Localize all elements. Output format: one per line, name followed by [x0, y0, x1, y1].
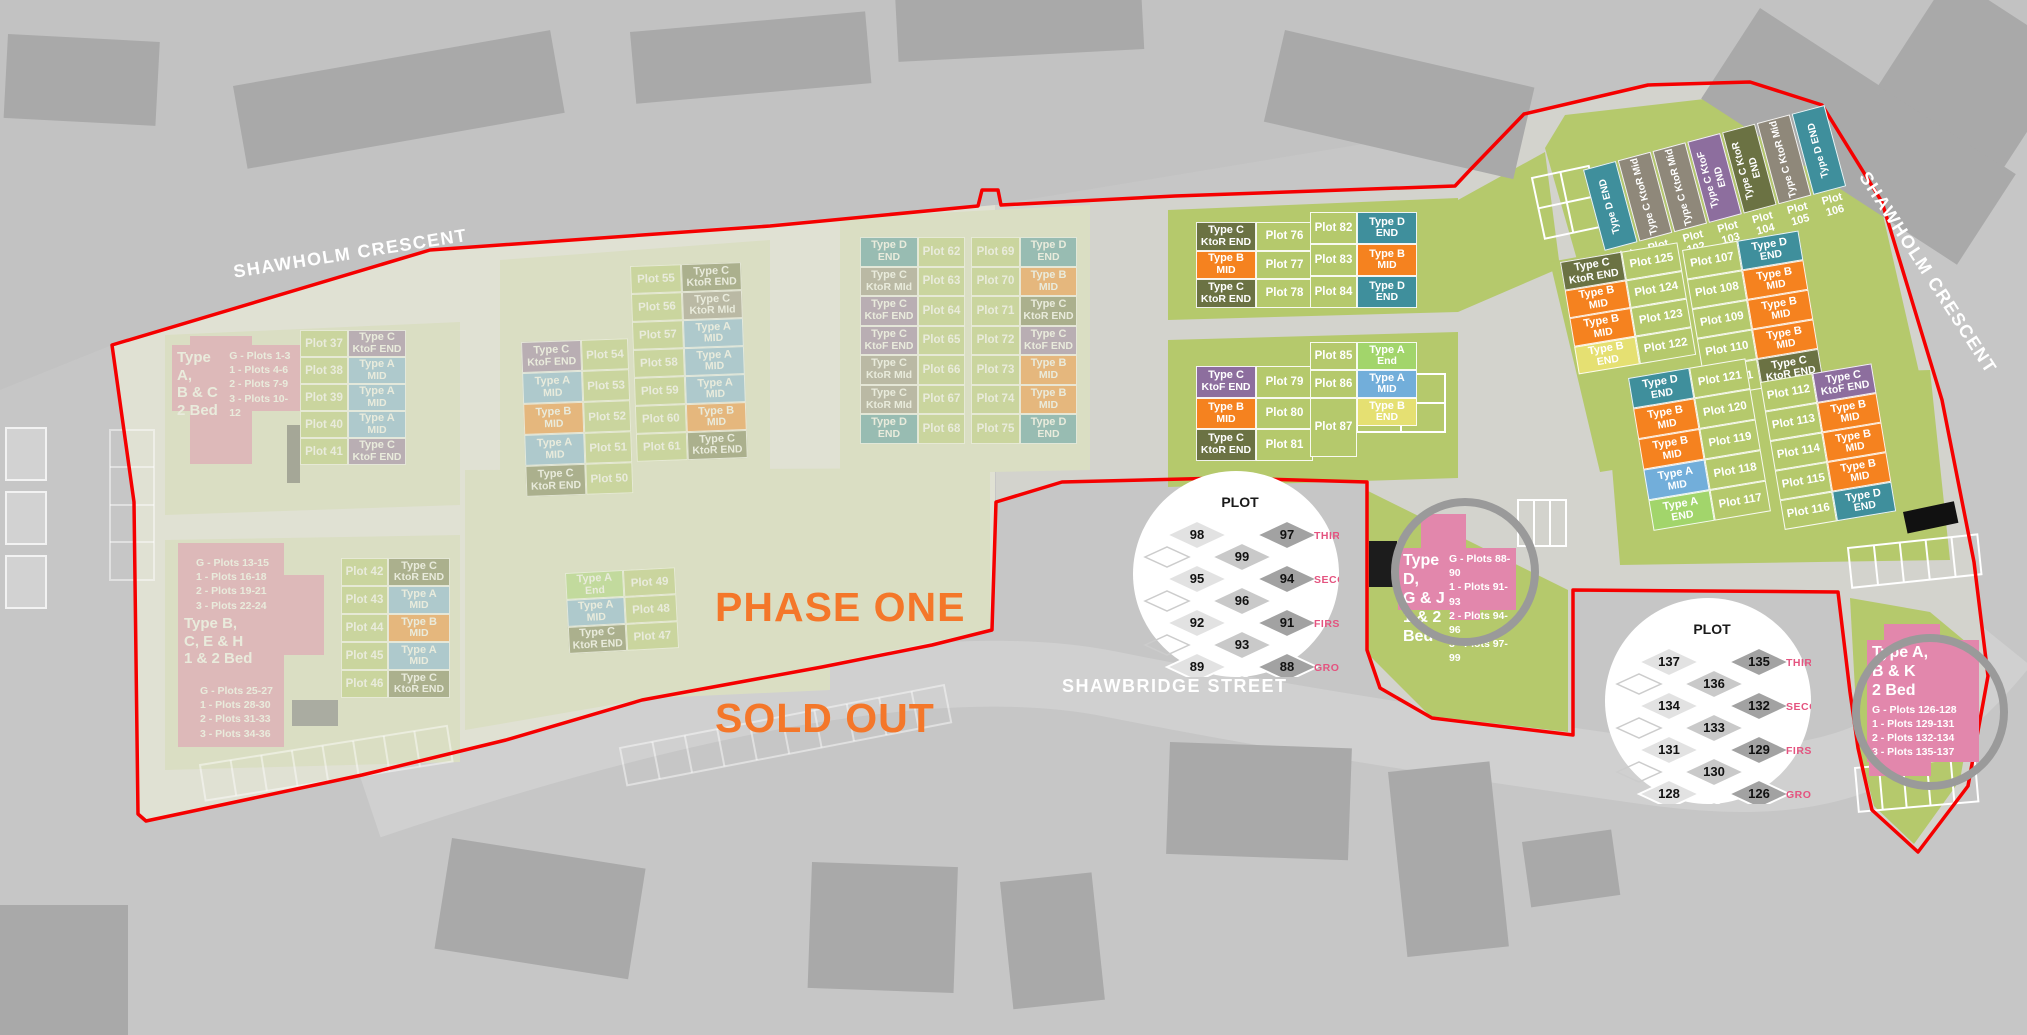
plot-number-label[interactable]: Plot 80	[1256, 398, 1313, 430]
plot-type-label[interactable]: Type BEND	[1357, 398, 1417, 426]
plot-type-label[interactable]: Type DEND	[1357, 212, 1417, 244]
svg-text:96: 96	[1235, 593, 1249, 608]
street-label-shawbridge: SHAWBRIDGE STREET	[1062, 676, 1288, 697]
info-title: Type D,G & J1 & 2Bed	[1403, 552, 1449, 606]
plot-row: Plot 82Type DEND	[1310, 212, 1417, 244]
type-line2: MID	[1358, 260, 1416, 271]
plot-row: Type CKtoR ENDPlot 78	[1196, 279, 1313, 308]
svg-text:126: 126	[1748, 786, 1770, 801]
type-line2: KtoF END	[1197, 382, 1255, 393]
svg-text:SECOND: SECOND	[1314, 574, 1339, 586]
diagram-title: PLOT	[1693, 621, 1731, 637]
plot-row: Plot 83Type BMID	[1310, 244, 1417, 276]
svg-text:130: 130	[1703, 764, 1725, 779]
plot-number-label[interactable]: Plot 82	[1310, 212, 1357, 244]
svg-text:SECOND: SECOND	[1786, 701, 1811, 713]
plot-type-label[interactable]: Type AMID	[1357, 370, 1417, 398]
plot-type-text: Type D END	[1806, 121, 1833, 179]
site-plan: Type A,B & C2 Bed G - Plots 1-31 - Plots…	[0, 0, 2027, 1035]
type-line2: END	[1358, 412, 1416, 423]
svg-text:131: 131	[1658, 742, 1680, 757]
svg-text:GROUND: GROUND	[1786, 789, 1811, 801]
plot-cluster-c125: Type CKtoR ENDPlot 125Type BMIDPlot 124T…	[1560, 242, 1696, 374]
plot-row: Type CKtoF ENDPlot 79	[1196, 366, 1313, 398]
plot-type-label[interactable]: Type DEND	[1357, 276, 1417, 308]
type-line2: KtoR END	[1197, 237, 1255, 248]
plot-cluster-c85: Plot 85Type AEndPlot 86Type AMIDPlot 87T…	[1310, 342, 1417, 426]
plot-row: Type BMIDPlot 77	[1196, 251, 1313, 280]
plot-type-label[interactable]: Type CKtoR END	[1196, 429, 1256, 461]
type-line2: MID	[1358, 384, 1416, 395]
plot-cluster-c121: Type DENDPlot 121Type BMIDPlot 120Type B…	[1628, 358, 1771, 531]
svg-text:129: 129	[1748, 742, 1770, 757]
plot-number-label[interactable]: Plot 83	[1310, 244, 1357, 276]
svg-text:93: 93	[1235, 637, 1249, 652]
plot-type-label[interactable]: Type BMID	[1196, 398, 1256, 430]
type-line2: MID	[1197, 265, 1255, 276]
plot-row: Plot 85Type AEnd	[1310, 342, 1417, 370]
svg-text:137: 137	[1658, 654, 1680, 669]
type-line1: Type C	[1197, 225, 1255, 237]
type-line2: End	[1358, 356, 1416, 367]
info-box-type-abk: Type A,B & K2 Bed G - Plots 126-1281 - P…	[1867, 640, 1979, 762]
svg-text:135: 135	[1748, 654, 1770, 669]
svg-text:133: 133	[1703, 720, 1725, 735]
plot-row: Plot 87Type BEND	[1310, 398, 1417, 426]
svg-text:THIRD: THIRD	[1314, 530, 1339, 542]
plot-number-label[interactable]: Plot 79	[1256, 366, 1313, 398]
type-line2: MID	[1197, 414, 1255, 425]
info-list: G - Plots 88-901 - Plots 91-932 - Plots …	[1449, 552, 1511, 606]
svg-text:134: 134	[1658, 698, 1680, 713]
svg-text:91: 91	[1280, 615, 1294, 630]
plot-number-label[interactable]: Plot 87	[1310, 398, 1357, 457]
banner-line2: SOLD OUT	[715, 691, 966, 746]
plot-type-label[interactable]: Type BMID	[1196, 251, 1256, 280]
plot-number-label[interactable]: Plot 78	[1256, 279, 1313, 308]
plot-cluster-c76: Type CKtoR ENDPlot 76Type BMIDPlot 77Typ…	[1196, 222, 1313, 308]
plot-number-label[interactable]: Plot 77	[1256, 251, 1313, 280]
svg-text:132: 132	[1748, 698, 1770, 713]
type-line2: KtoR END	[1197, 294, 1255, 305]
plot-row: Type BMIDPlot 80	[1196, 398, 1313, 430]
plot-type-label[interactable]: Type CKtoR END	[1196, 222, 1256, 251]
svg-text:89: 89	[1190, 659, 1204, 674]
plot-cluster-c112: Plot 112Type CKtoF ENDPlot 113Type BMIDP…	[1760, 363, 1896, 530]
plot-type-label[interactable]: Type CKtoF END	[1196, 366, 1256, 398]
plot-type-text: Type D END	[1597, 177, 1624, 235]
phase-one-banner: PHASE ONE SOLD OUT	[715, 525, 966, 802]
type-line1: Type C	[1197, 282, 1255, 294]
plot-cluster-c79: Type CKtoF ENDPlot 79Type BMIDPlot 80Typ…	[1196, 366, 1313, 461]
plot-type-label[interactable]: Type BMID	[1357, 244, 1417, 276]
info-box-type-dgj: Type D,G & J1 & 2Bed G - Plots 88-901 - …	[1398, 548, 1516, 610]
plot-number-label[interactable]: Plot 86	[1310, 370, 1357, 398]
plot-type-label[interactable]: Type CKtoR END	[1196, 279, 1256, 308]
plot-row: Plot 86Type AMID	[1310, 370, 1417, 398]
plot-number-label[interactable]: Plot 76	[1256, 222, 1313, 251]
svg-text:FIRST: FIRST	[1786, 745, 1811, 757]
svg-text:92: 92	[1190, 615, 1204, 630]
info-list: G - Plots 126-1281 - Plots 129-1312 - Pl…	[1872, 703, 1974, 760]
type-line1: Type B	[1197, 402, 1255, 414]
plot-number-label[interactable]: Plot 85	[1310, 342, 1357, 370]
plot-number-label[interactable]: Plot 84	[1310, 276, 1357, 308]
info-title: Type A,B & K2 Bed	[1872, 644, 1974, 701]
type-line2: KtoR END	[1197, 445, 1255, 456]
building-silhouette	[1421, 514, 1466, 552]
banner-line1: PHASE ONE	[715, 580, 966, 635]
svg-text:97: 97	[1280, 527, 1294, 542]
svg-text:99: 99	[1235, 549, 1249, 564]
plot-type-label[interactable]: Type AEnd	[1357, 342, 1417, 370]
svg-text:94: 94	[1280, 571, 1295, 586]
svg-text:95: 95	[1190, 571, 1204, 586]
type-line2: END	[1358, 228, 1416, 239]
svg-text:98: 98	[1190, 527, 1204, 542]
svg-text:GROUND: GROUND	[1314, 662, 1339, 674]
svg-text:FIRST: FIRST	[1314, 618, 1339, 630]
svg-text:THIRD: THIRD	[1786, 657, 1811, 669]
plot-row: Type CKtoR ENDPlot 76	[1196, 222, 1313, 251]
garage-blocks	[6, 428, 46, 608]
plot-row: Type CKtoR ENDPlot 81	[1196, 429, 1313, 461]
plot-cluster-c82: Plot 82Type DENDPlot 83Type BMIDPlot 84T…	[1310, 212, 1417, 308]
svg-text:136: 136	[1703, 676, 1725, 691]
plot-row: Plot 84Type DEND	[1310, 276, 1417, 308]
diagram-title: PLOT	[1221, 494, 1259, 510]
svg-text:88: 88	[1280, 659, 1294, 674]
svg-text:128: 128	[1658, 786, 1680, 801]
plot-number-label[interactable]: Plot 81	[1256, 429, 1313, 461]
type-line2: END	[1358, 292, 1416, 303]
